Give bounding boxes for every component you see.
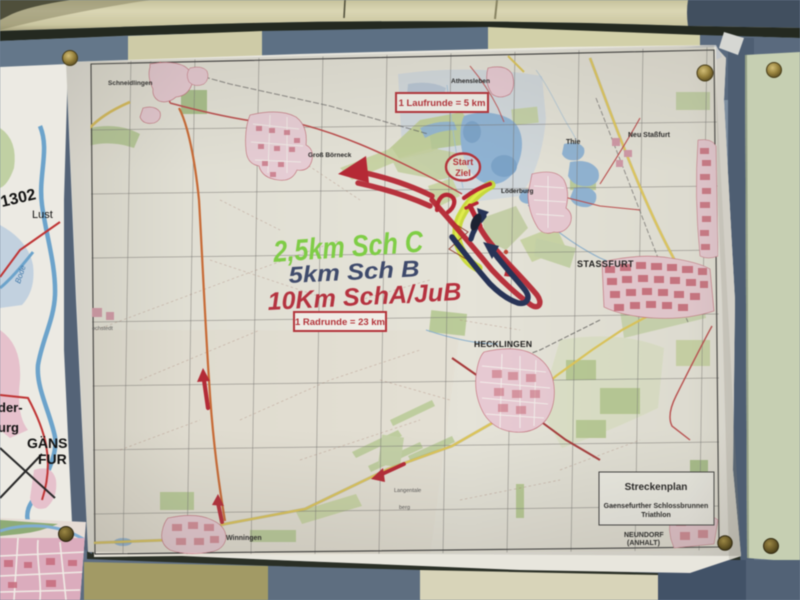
svg-text:GÄNS: GÄNS: [27, 435, 67, 451]
svg-text:der-: der-: [0, 400, 23, 415]
svg-text:urg: urg: [0, 420, 19, 435]
svg-text:FUR: FUR: [38, 451, 67, 467]
svg-text:Lust: Lust: [32, 209, 53, 221]
